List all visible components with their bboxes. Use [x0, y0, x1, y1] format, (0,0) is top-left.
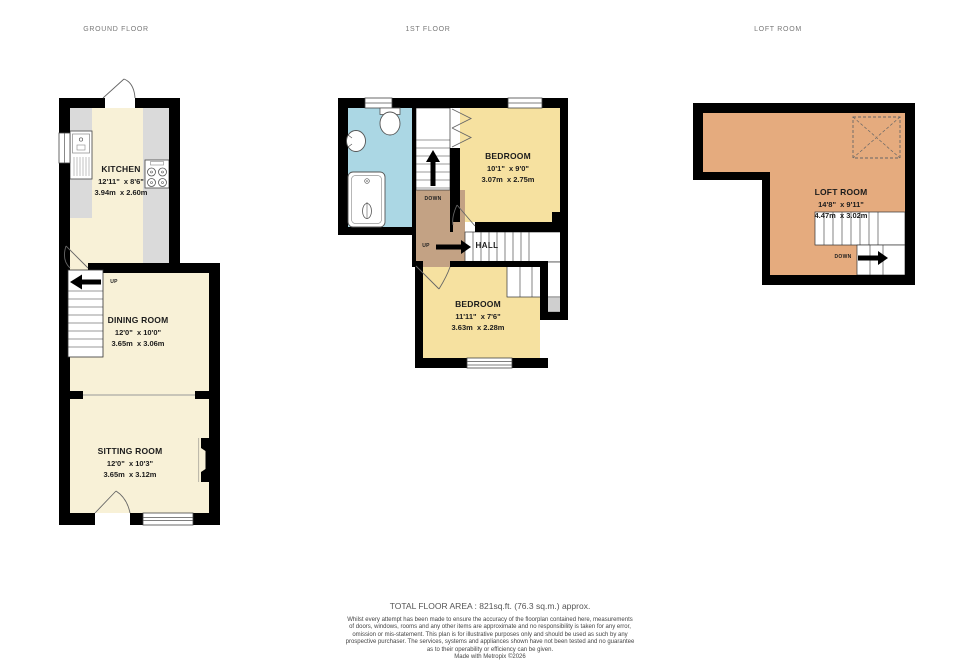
- kitchen-label: KITCHEN 12'11" x 8'6" 3.94m x 2.60m: [61, 164, 181, 199]
- ground-floor-plan: KITCHEN 12'11" x 8'6" 3.94m x 2.60m DINI…: [55, 75, 235, 535]
- dining-dims-imperial: 12'0" x 10'0": [78, 327, 198, 339]
- disclaimer-line-3: omission or mis-statement. This plan is …: [0, 632, 980, 639]
- disclaimer-line-4: prospective purchaser. The services, sys…: [0, 639, 980, 646]
- kitchen-name: KITCHEN: [61, 164, 181, 176]
- disclaimer-line-2: of doors, windows, rooms and any other i…: [0, 624, 980, 631]
- kitchen-back-door: [103, 79, 135, 98]
- toilet-icon: [380, 108, 400, 135]
- first-floor-plan: BEDROOM 10'1" x 9'0" 3.07m x 2.75m BEDRO…: [335, 90, 580, 385]
- dining-room-label: DINING ROOM 12'0" x 10'0" 3.65m x 3.06m: [78, 315, 198, 350]
- first-floor-drawing: [335, 90, 580, 385]
- basin-icon: [347, 131, 366, 152]
- first-floor-down-stairs: [416, 108, 450, 190]
- hall-label: HALL: [457, 241, 517, 250]
- credit-line: Made with Metropix ©2026: [0, 654, 980, 661]
- first-up-label: UP: [419, 243, 433, 249]
- bedroom2-name: BEDROOM: [418, 299, 538, 311]
- kitchen-dims-imperial: 12'11" x 8'6": [61, 176, 181, 188]
- first-down-label: DOWN: [414, 196, 452, 202]
- bedroom2-dims-imperial: 11'11" x 7'6": [418, 311, 538, 323]
- disclaimer: Whilst every attempt has been made to en…: [0, 617, 980, 661]
- loft-floor-title: LOFT ROOM: [698, 26, 858, 33]
- sitting-dims-imperial: 12'0" x 10'3": [70, 458, 190, 470]
- loft-room-label: LOFT ROOM 14'8" x 9'11" 4.47m x 3.02m: [781, 187, 901, 222]
- bathtub-icon: [348, 172, 385, 227]
- bedroom2-dims-metric: 3.63m x 2.28m: [418, 322, 538, 334]
- loft-dims-metric: 4.47m x 3.02m: [781, 210, 901, 222]
- bedroom2-label: BEDROOM 11'11" x 7'6" 3.63m x 2.28m: [418, 299, 538, 334]
- bedroom1-label: BEDROOM 10'1" x 9'0" 3.07m x 2.75m: [448, 151, 568, 186]
- bedroom1-dims-metric: 3.07m x 2.75m: [448, 174, 568, 186]
- dining-dims-metric: 3.65m x 3.06m: [78, 338, 198, 350]
- first-floor-title: 1ST FLOOR: [348, 26, 508, 33]
- sitting-name: SITTING ROOM: [70, 446, 190, 458]
- disclaimer-line-1: Whilst every attempt has been made to en…: [0, 617, 980, 624]
- ground-floor-title: GROUND FLOOR: [36, 26, 196, 33]
- bedroom1-name: BEDROOM: [448, 151, 568, 163]
- disclaimer-line-5: as to their operability or efficiency ca…: [0, 647, 980, 654]
- total-floor-area: TOTAL FLOOR AREA : 821sq.ft. (76.3 sq.m.…: [0, 601, 980, 611]
- sitting-room-label: SITTING ROOM 12'0" x 10'3" 3.65m x 3.12m: [70, 446, 190, 481]
- loft-name: LOFT ROOM: [781, 187, 901, 199]
- kitchen-window: [59, 133, 70, 163]
- sitting-dims-metric: 3.65m x 3.12m: [70, 469, 190, 481]
- loft-plan: LOFT ROOM 14'8" x 9'11" 4.47m x 3.02m DO…: [690, 95, 925, 300]
- sitting-window: [143, 513, 193, 525]
- loft-dims-imperial: 14'8" x 9'11": [781, 199, 901, 211]
- kitchen-dims-metric: 3.94m x 2.60m: [61, 187, 181, 199]
- dining-name: DINING ROOM: [78, 315, 198, 327]
- loft-down-label: DOWN: [829, 254, 857, 260]
- bedroom1-dims-imperial: 10'1" x 9'0": [448, 163, 568, 175]
- ground-up-label: UP: [106, 279, 122, 285]
